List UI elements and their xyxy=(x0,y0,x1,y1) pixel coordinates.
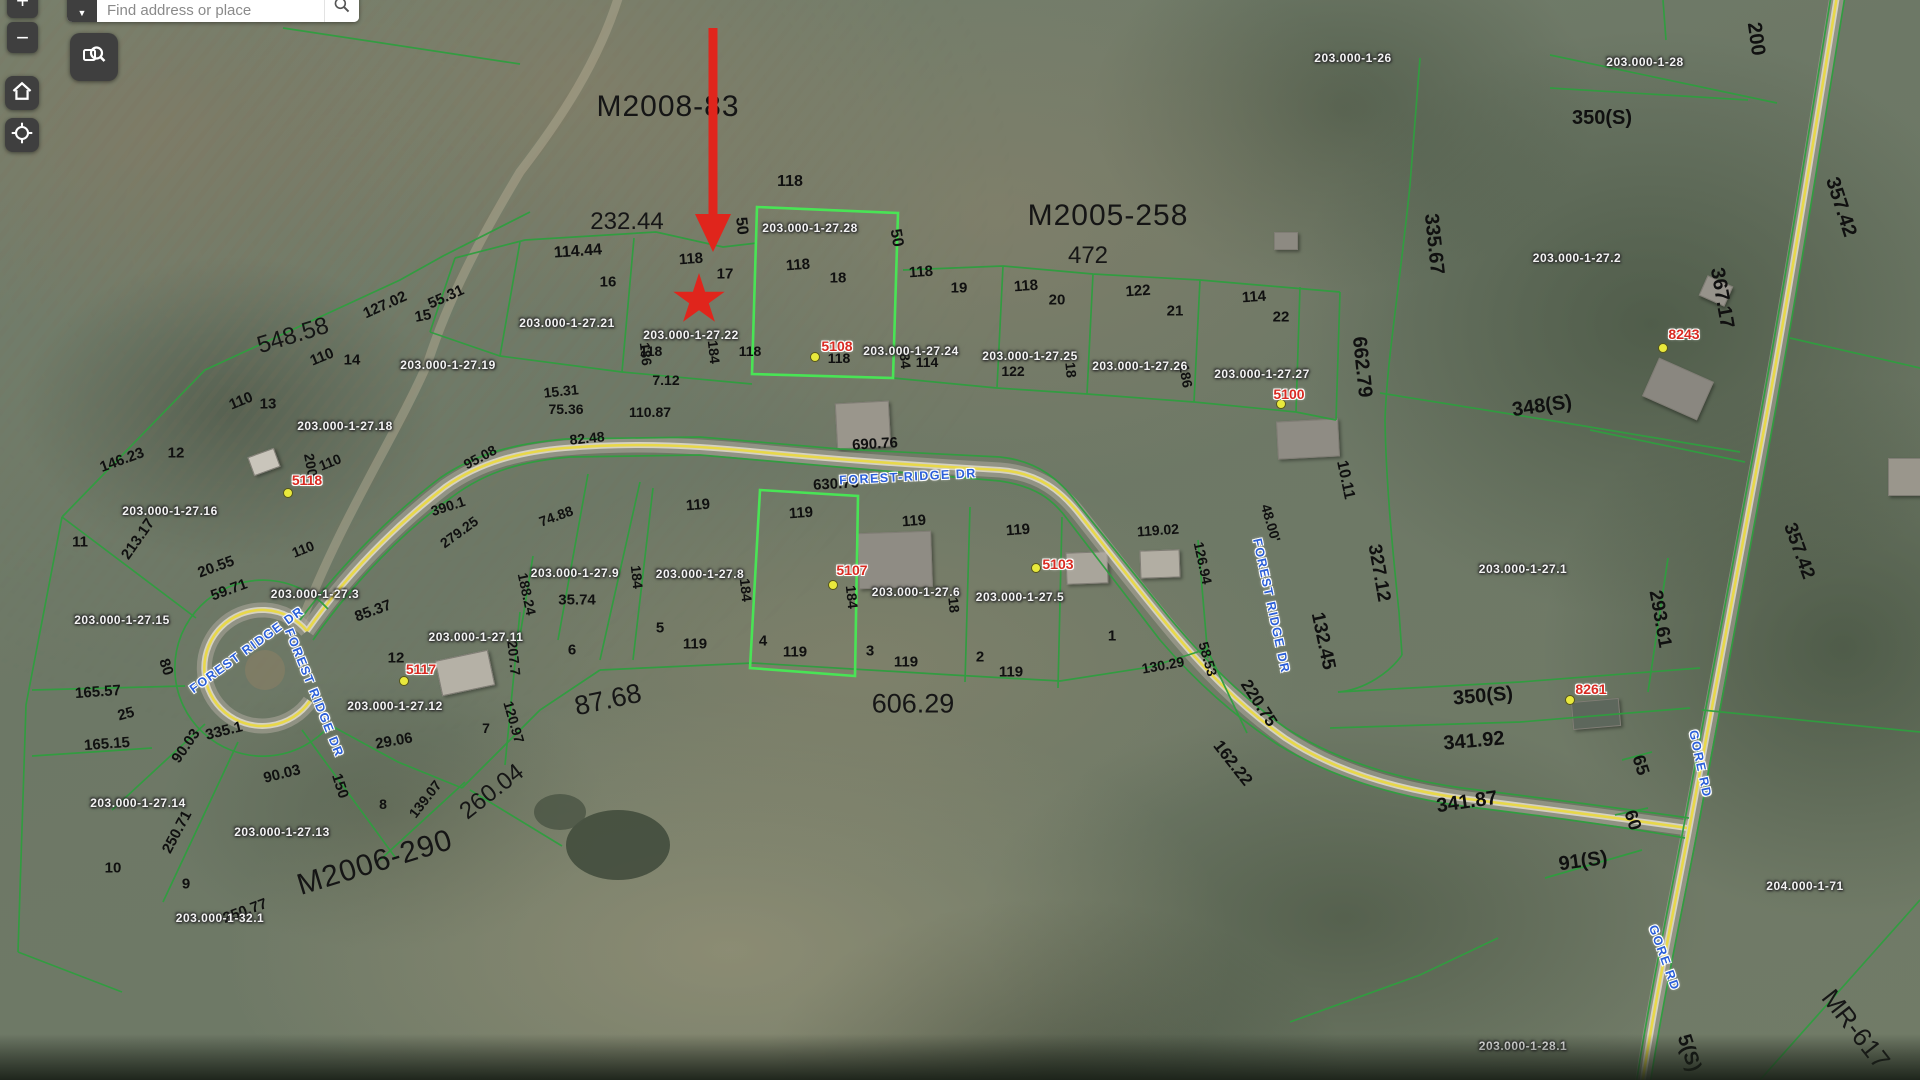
map-viewport[interactable]: M2008-83M2005-258M2006-290472232.44548.5… xyxy=(0,0,1920,1080)
zoom-in-button[interactable]: + xyxy=(7,0,38,18)
marker-star xyxy=(673,273,724,322)
locate-button[interactable] xyxy=(5,118,39,152)
chevron-down-icon: ▼ xyxy=(78,8,87,18)
plus-icon: + xyxy=(16,0,29,14)
search-by-map-button[interactable] xyxy=(70,33,118,81)
search-input[interactable] xyxy=(97,0,324,22)
search-source-dropdown[interactable]: ▼ xyxy=(67,0,97,22)
map-search-icon xyxy=(80,41,108,74)
zoom-out-button[interactable]: − xyxy=(7,22,38,53)
locate-icon xyxy=(10,121,34,150)
tree-line xyxy=(0,1034,1920,1080)
minus-icon: − xyxy=(16,25,29,51)
search-button[interactable] xyxy=(324,0,359,22)
marker-layer xyxy=(0,0,1920,1080)
search-icon xyxy=(333,0,351,19)
home-button[interactable] xyxy=(5,76,39,110)
marker-arrow xyxy=(695,28,731,252)
search-bar[interactable]: ▼ xyxy=(67,0,359,22)
home-icon xyxy=(10,79,34,108)
